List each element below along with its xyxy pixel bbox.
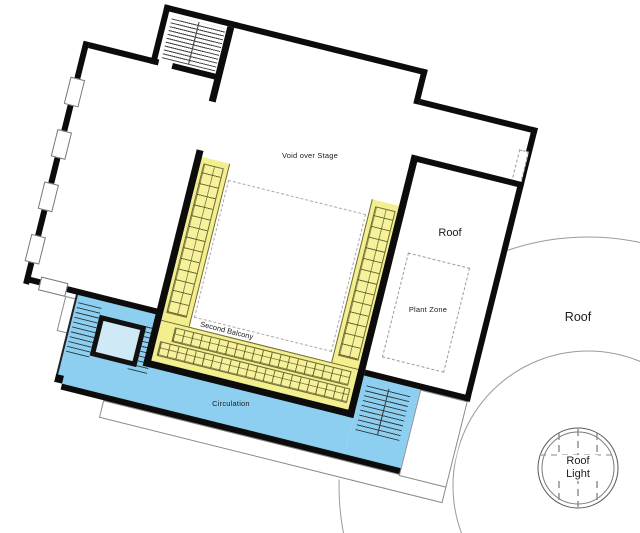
roof-light-skylight	[538, 428, 618, 508]
floor-plan-canvas: Second Balcony Void over Stage Roof Plan…	[0, 0, 640, 533]
roof-arc-inner	[453, 351, 640, 533]
